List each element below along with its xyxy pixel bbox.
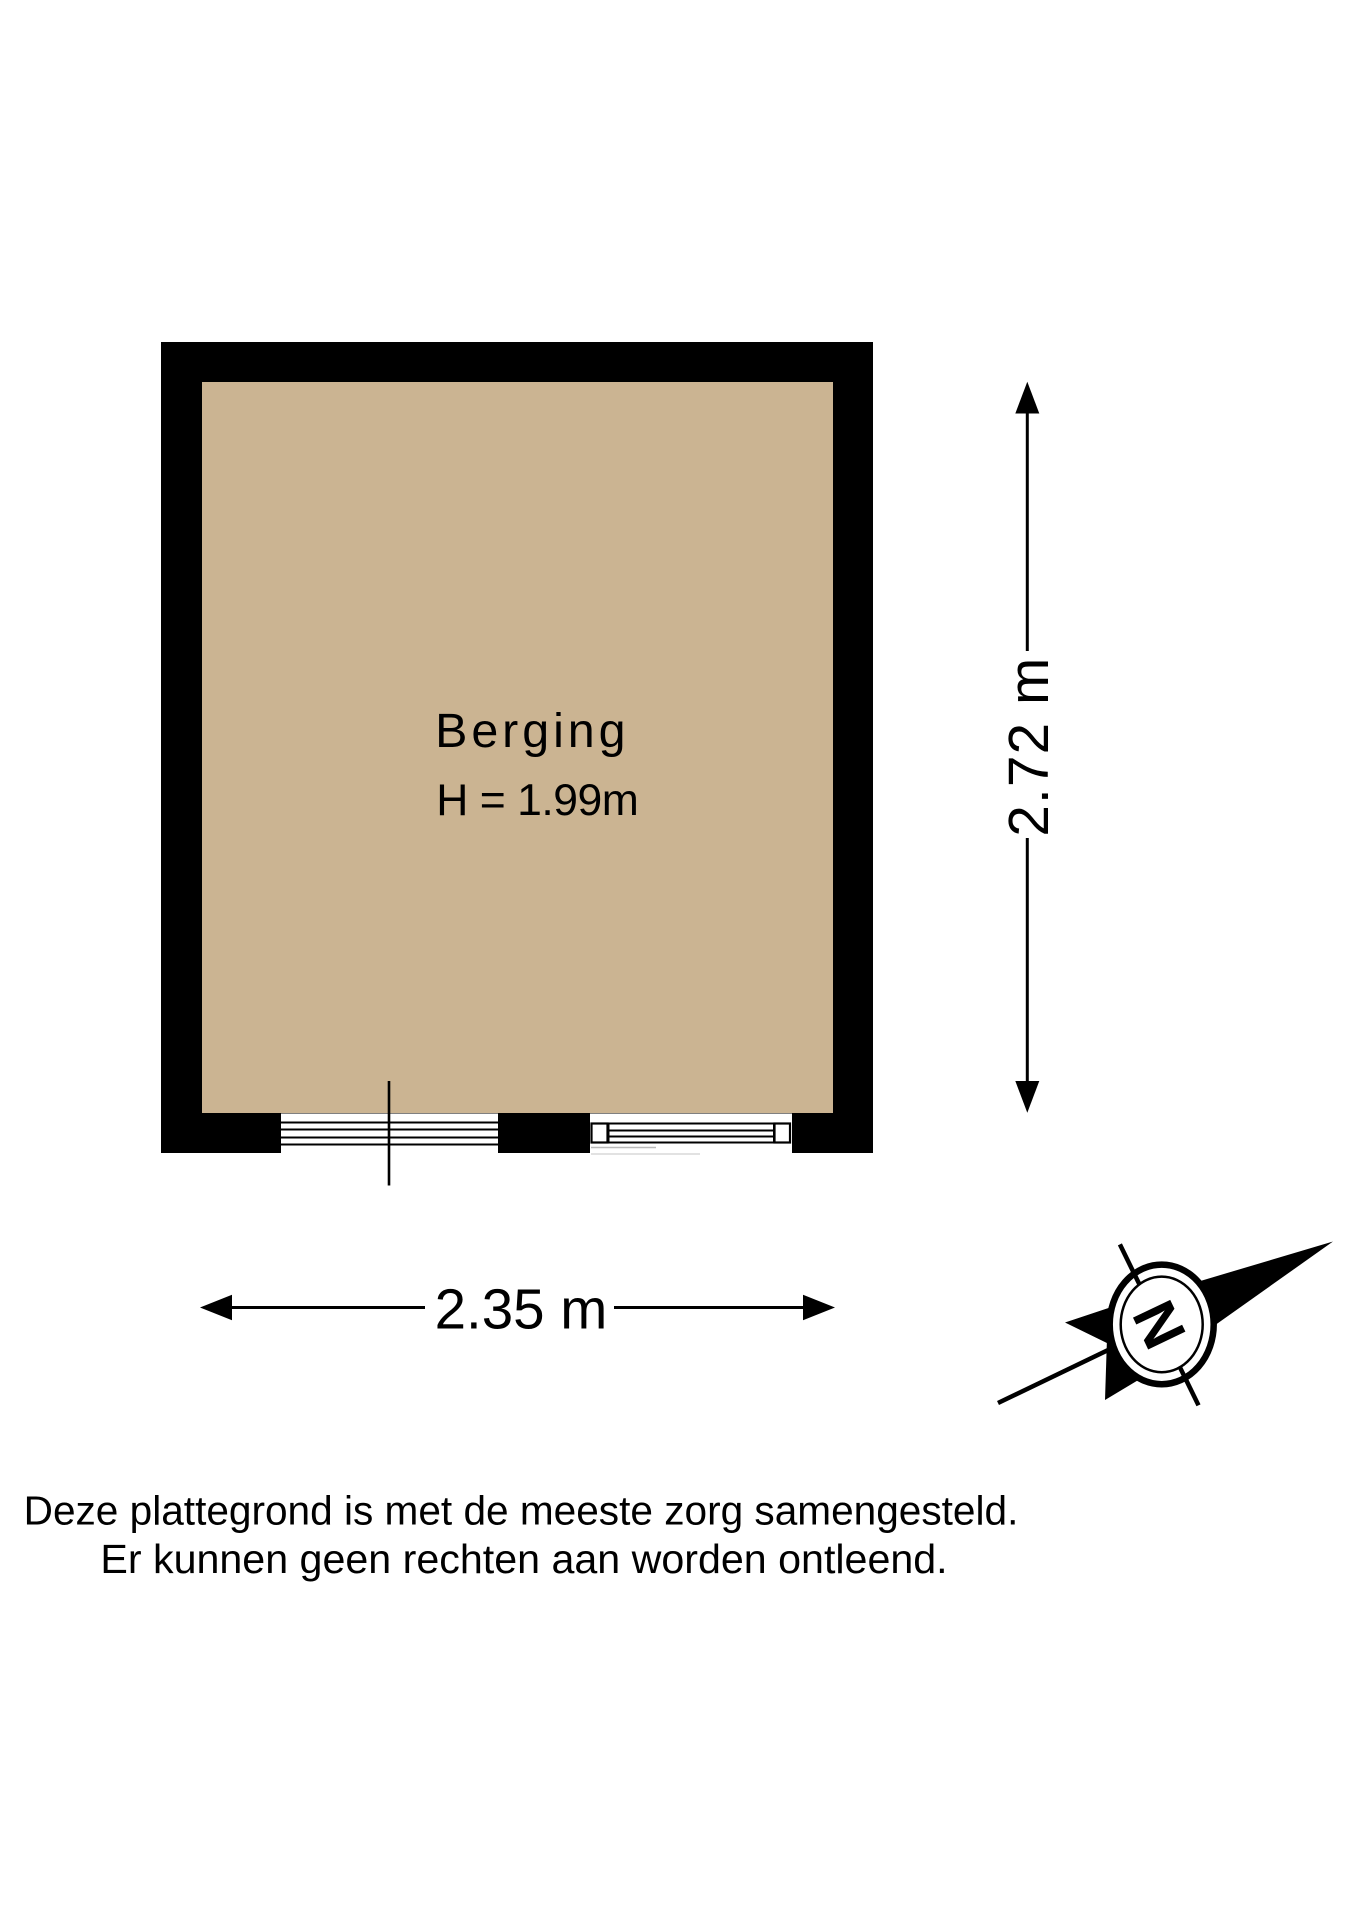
svg-text:H = 1.99m: H = 1.99m — [436, 776, 638, 825]
svg-text:2.72 m: 2.72 m — [997, 657, 1060, 837]
svg-text:Berging: Berging — [435, 704, 629, 758]
svg-text:Er kunnen geen rechten aan wor: Er kunnen geen rechten aan worden ontlee… — [100, 1536, 947, 1582]
svg-text:Deze plattegrond is met de mee: Deze plattegrond is met de meeste zorg s… — [24, 1487, 1019, 1533]
svg-text:2.35 m: 2.35 m — [435, 1278, 608, 1341]
